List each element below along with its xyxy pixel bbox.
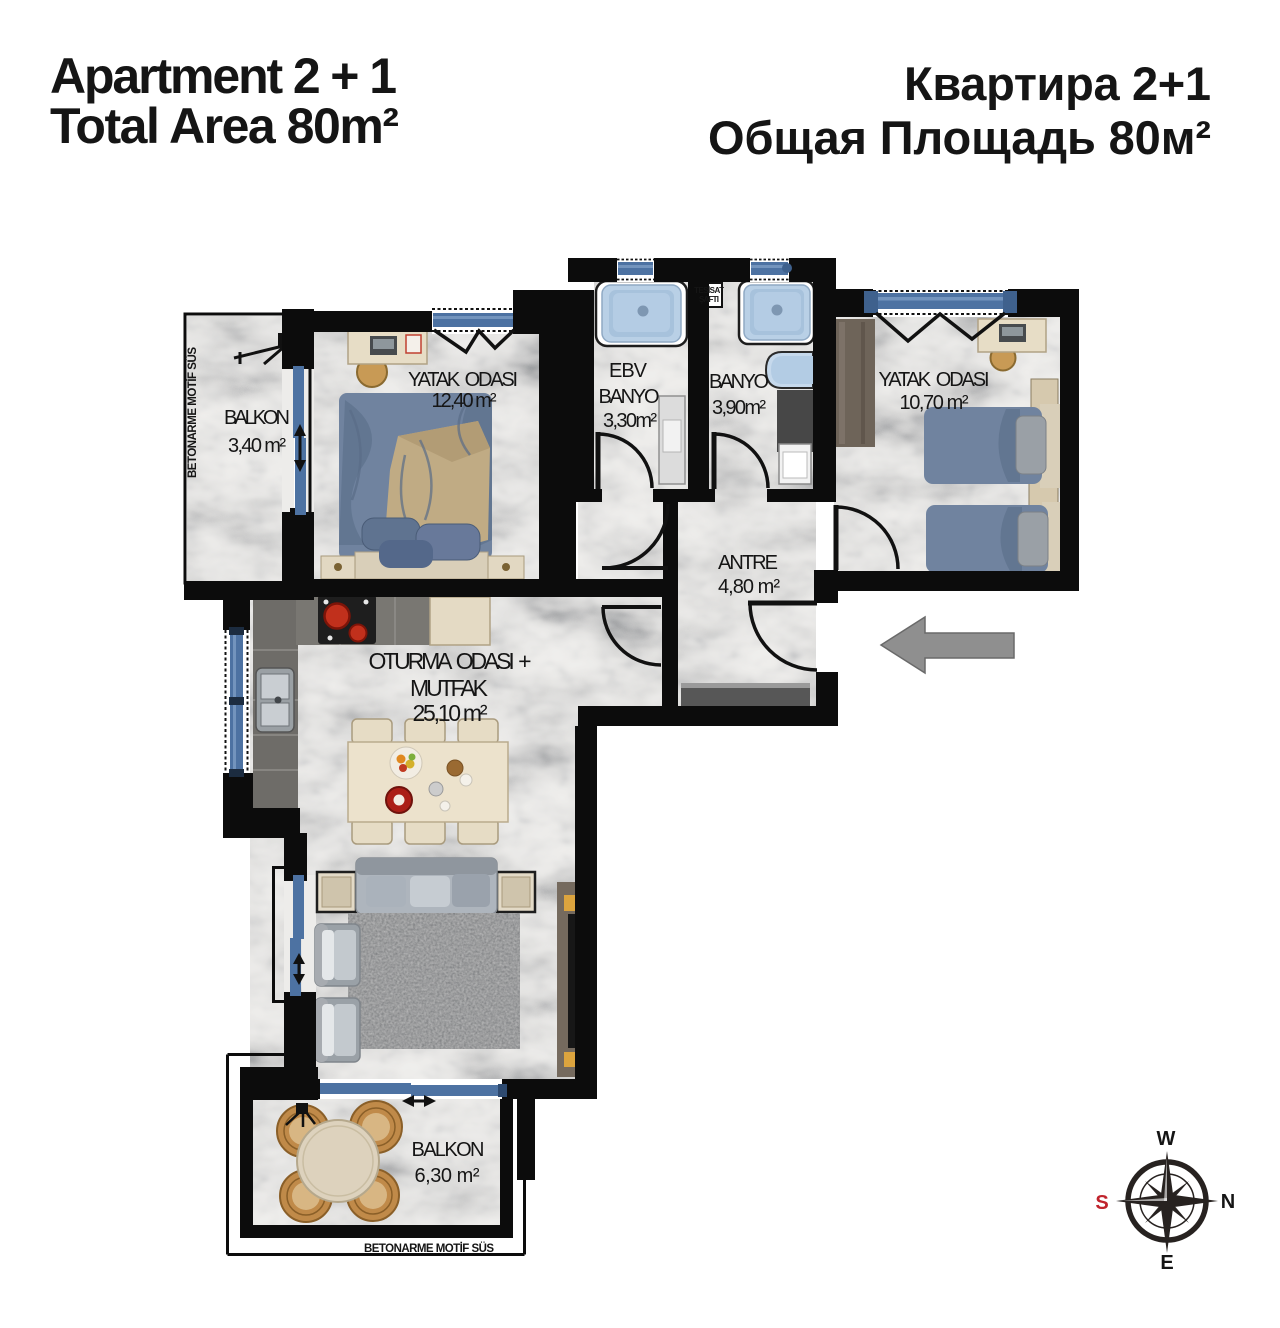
svg-text:ANTRE: ANTRE bbox=[718, 552, 778, 574]
svg-text:4,80 m²: 4,80 m² bbox=[718, 576, 780, 598]
svg-text:12,40 m²: 12,40 m² bbox=[432, 390, 497, 412]
svg-text:TESİSAT: TESİSAT bbox=[694, 286, 724, 295]
svg-text:BANYO: BANYO bbox=[709, 371, 769, 393]
svg-text:W: W bbox=[1157, 1128, 1176, 1150]
svg-text:BETONARME MOTİF SÜS: BETONARME MOTİF SÜS bbox=[364, 1242, 494, 1255]
svg-text:ŞAFTI: ŞAFTI bbox=[699, 295, 719, 304]
svg-text:Общая Площадь 80м²: Общая Площадь 80м² bbox=[708, 111, 1211, 164]
svg-text:BETONARME MOTİF SÜS: BETONARME MOTİF SÜS bbox=[186, 347, 199, 478]
svg-text:YATAK ODASI: YATAK ODASI bbox=[408, 369, 518, 391]
svg-text:3,40 m²: 3,40 m² bbox=[228, 435, 286, 457]
svg-text:MUTFAK: MUTFAK bbox=[410, 675, 489, 701]
svg-text:6,30 m²: 6,30 m² bbox=[415, 1165, 480, 1187]
svg-text:Квартира 2+1: Квартира 2+1 bbox=[904, 57, 1211, 110]
svg-text:BANYO: BANYO bbox=[599, 386, 660, 408]
svg-text:BALKON: BALKON bbox=[224, 407, 290, 429]
svg-text:OTURMA ODASI +: OTURMA ODASI + bbox=[369, 648, 532, 674]
svg-text:E: E bbox=[1160, 1252, 1173, 1274]
svg-text:3,90m²: 3,90m² bbox=[712, 397, 766, 419]
svg-text:Total Area 80m²: Total Area 80m² bbox=[50, 98, 399, 154]
svg-text:25,10 m²: 25,10 m² bbox=[413, 700, 488, 726]
svg-text:EBV: EBV bbox=[609, 360, 648, 382]
svg-text:Apartment 2 + 1: Apartment 2 + 1 bbox=[50, 48, 397, 104]
svg-text:3,30m²: 3,30m² bbox=[603, 410, 657, 432]
svg-text:10,70 m²: 10,70 m² bbox=[900, 392, 969, 414]
svg-text:YATAK ODASI: YATAK ODASI bbox=[879, 369, 990, 391]
svg-text:S: S bbox=[1095, 1192, 1108, 1214]
svg-text:BALKON: BALKON bbox=[412, 1139, 485, 1161]
svg-text:N: N bbox=[1221, 1191, 1235, 1213]
